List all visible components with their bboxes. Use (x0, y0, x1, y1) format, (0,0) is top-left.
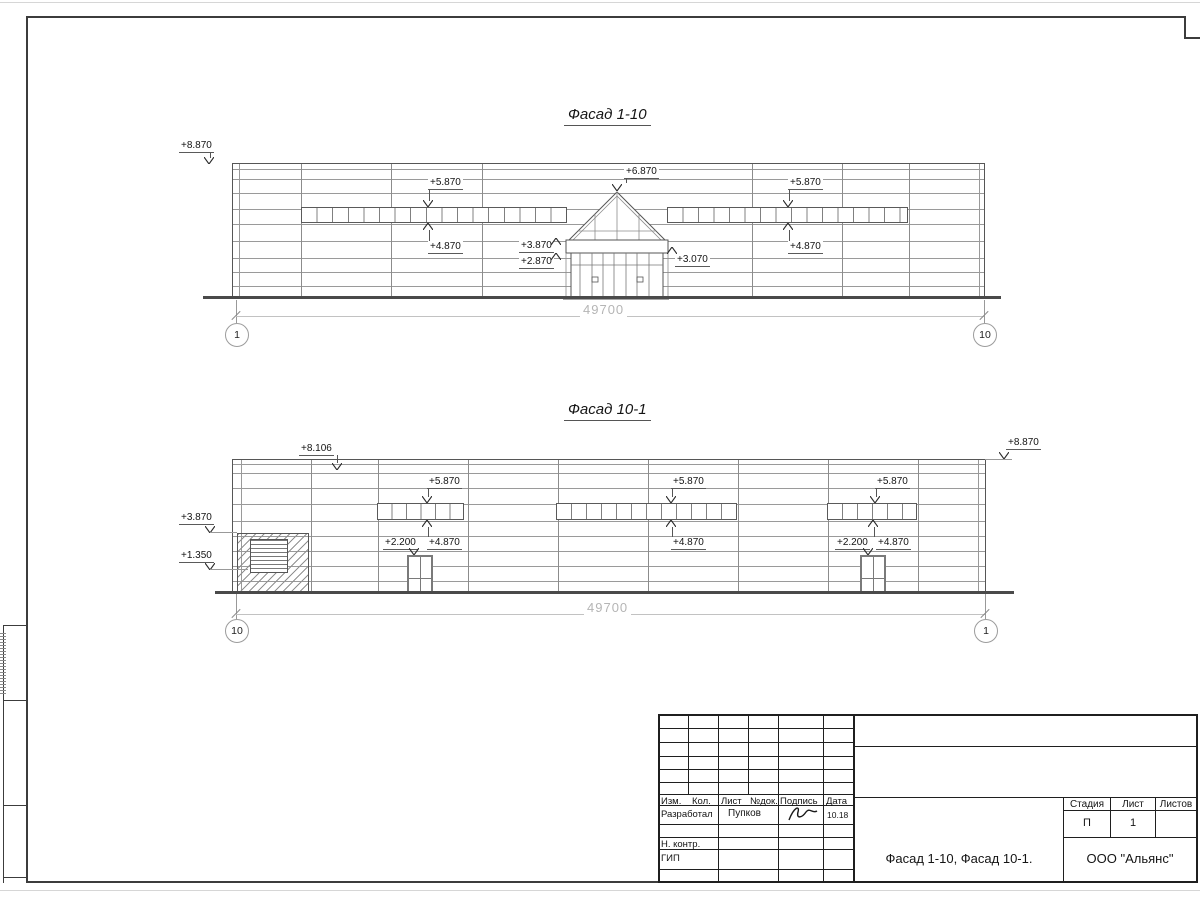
door-rail (862, 578, 884, 579)
elevation-leader (429, 230, 430, 241)
elevation-leader (874, 527, 875, 537)
tb-grid-line (853, 746, 1198, 747)
elevation-leader (428, 527, 429, 537)
door-mullion (420, 557, 421, 591)
roof-extension-line (985, 459, 1012, 460)
tb-border (1196, 714, 1198, 883)
elevation-mark: +4.870 (671, 537, 706, 550)
tb-grid-line (658, 869, 854, 870)
elevation-leader (337, 455, 338, 463)
signature (786, 804, 820, 824)
margin-box-divider (3, 625, 26, 626)
pilaster-line (979, 164, 980, 297)
facade1-window-band-left (301, 207, 567, 223)
margin-box-divider (3, 805, 26, 806)
elevation-arrow-up-icon (551, 238, 561, 245)
elevation-arrow-down-icon (999, 452, 1009, 459)
level-extension-line (210, 569, 248, 570)
tb-border (658, 714, 660, 883)
panel-joint-line (233, 536, 985, 537)
elevation-mark: +5.870 (671, 476, 706, 489)
margin-box-divider (3, 700, 26, 701)
tb-col-ndok: №док. (750, 796, 778, 807)
dimension-text: 49700 (580, 302, 627, 317)
facade1-entrance-portal (560, 186, 672, 300)
elevation-arrow-up-icon (868, 520, 878, 527)
page-top-edge (0, 2, 1200, 3)
tb-col-kol: Кол. (692, 796, 711, 807)
tb-list-label: Лист (1111, 799, 1155, 810)
frame-left-line (26, 16, 28, 883)
tb-grid-line (658, 728, 854, 729)
tb-grid-line (1063, 810, 1198, 811)
elevation-leader (672, 527, 673, 537)
tb-list-value: 1 (1111, 817, 1155, 829)
axis-extension-line (985, 594, 986, 619)
tb-row-razrabotal: Разработал (661, 809, 713, 820)
axis-bubble: 1 (974, 619, 998, 643)
facade1-title: Фасад 1-10 (564, 106, 651, 126)
frame-corner-notch-vertical (1184, 16, 1186, 39)
drawing-sheet: Фасад 1-10 (0, 0, 1200, 900)
tb-grid-line (718, 714, 719, 881)
elevation-arrow-up-icon (667, 247, 677, 254)
elevation-arrow-down-icon (863, 548, 873, 555)
axis-bubble: 10 (225, 619, 249, 643)
elevation-mark: +3.870 (179, 512, 214, 525)
tb-grid-line (853, 797, 1198, 798)
elevation-mark: +3.870 (519, 240, 554, 253)
elevation-mark: +4.870 (427, 537, 462, 550)
margin-box-divider (3, 877, 26, 878)
tb-col-izm: Изм. (661, 796, 681, 807)
margin-stamp-text (0, 632, 6, 694)
elevation-leader (626, 178, 627, 183)
elevation-arrow-down-icon (783, 200, 793, 207)
elevation-arrow-down-icon (332, 463, 342, 470)
pilaster-line (239, 164, 240, 297)
frame-top-line (26, 16, 1184, 18)
elevation-mark: +8.870 (179, 140, 214, 153)
facade2-door-1 (407, 555, 433, 593)
elevation-mark: +4.870 (788, 241, 823, 254)
column-joint-line (842, 164, 843, 297)
facade2-louver-grille (250, 539, 288, 573)
facade2-door-2 (860, 555, 886, 593)
column-joint-line (918, 460, 919, 592)
tb-grid-line (823, 714, 824, 881)
elevation-mark: +5.870 (428, 177, 463, 190)
axis-bubble: 10 (973, 323, 997, 347)
panel-joint-line (233, 488, 985, 489)
elevation-arrow-down-icon (870, 496, 880, 503)
tb-grid-line (658, 794, 854, 795)
column-joint-line (482, 164, 483, 297)
axis-extension-line (236, 594, 237, 619)
elevation-arrow-down-icon (612, 184, 622, 191)
column-joint-line (468, 460, 469, 592)
panel-joint-line (233, 179, 984, 180)
dimension-text: 49700 (584, 600, 631, 615)
door-mullion (873, 557, 874, 591)
elevation-arrow-down-icon (423, 200, 433, 207)
elevation-mark: +3.070 (675, 254, 710, 267)
facade2-ground-line (215, 591, 1014, 594)
elevation-arrow-down-icon (666, 496, 676, 503)
elevation-mark: +4.870 (428, 241, 463, 254)
tb-doc-title: Фасад 1-10, Фасад 10-1. (855, 851, 1063, 866)
panel-joint-line (233, 473, 985, 474)
elevation-arrow-up-icon (422, 520, 432, 527)
elevation-mark: +1.350 (179, 550, 214, 563)
elevation-arrow-up-icon (551, 253, 561, 260)
elevation-mark: +8.870 (1006, 437, 1041, 450)
column-joint-line (558, 460, 559, 592)
tb-col-data: Дата (826, 796, 847, 807)
elevation-arrow-up-icon (783, 223, 793, 230)
elevation-mark: +8.106 (299, 443, 334, 456)
facade2-window-band-1 (377, 503, 464, 520)
tb-grid-line (658, 824, 854, 825)
column-joint-line (738, 460, 739, 592)
tb-stadiya-value: П (1064, 817, 1110, 829)
tb-grid-line (658, 769, 854, 770)
elevation-leader (789, 230, 790, 241)
tb-stadiya-label: Стадия (1064, 799, 1110, 810)
facade1-ground-line (203, 296, 1001, 299)
canopy-fascia (566, 240, 668, 253)
column-joint-line (648, 460, 649, 592)
elevation-arrow-down-icon (204, 157, 214, 164)
axis-extension-line (984, 300, 985, 323)
elevation-mark: +2.870 (519, 256, 554, 269)
elevation-mark: +4.870 (876, 537, 911, 550)
tb-company: ООО "Альянс" (1064, 851, 1196, 866)
tb-border (658, 881, 1198, 883)
tb-row-gip: ГИП (661, 853, 680, 864)
elevation-arrow-down-icon (409, 548, 419, 555)
frame-corner-notch-horizontal (1184, 37, 1200, 39)
elevation-mark: +5.870 (788, 177, 823, 190)
tb-col-list: Лист (721, 796, 742, 807)
panel-joint-line (233, 169, 984, 170)
axis-bubble: 1 (225, 323, 249, 347)
tb-listov-label: Листов (1156, 799, 1196, 810)
elevation-mark: +5.870 (427, 476, 462, 489)
column-joint-line (752, 164, 753, 297)
tb-razrabotal-name: Пупков (728, 808, 761, 819)
door-rail (409, 578, 431, 579)
tb-row-nkontr: Н. контр. (661, 839, 700, 850)
column-joint-line (311, 460, 312, 592)
tb-grid-line (658, 742, 854, 743)
column-joint-line (301, 164, 302, 297)
elevation-arrow-up-icon (423, 223, 433, 230)
elevation-mark: +6.870 (624, 166, 659, 179)
facade2-window-band-2 (556, 503, 737, 520)
column-joint-line (378, 460, 379, 592)
axis-extension-line (236, 300, 237, 323)
tb-grid-line (658, 756, 854, 757)
elevation-arrow-up-icon (666, 520, 676, 527)
title-block: Изм. Кол. Лист №док. Подпись Дата Разраб… (658, 714, 1198, 883)
tb-grid-line (658, 837, 854, 838)
facade2-title: Фасад 10-1 (564, 401, 651, 421)
column-joint-line (828, 460, 829, 592)
page-bottom-edge (0, 890, 1200, 891)
level-extension-line (210, 532, 237, 533)
facade1-window-band-right (667, 207, 908, 223)
tb-grid-line (658, 782, 854, 783)
elevation-mark: +5.870 (875, 476, 910, 489)
tb-border (658, 714, 1198, 716)
pilaster-line (978, 460, 979, 592)
tb-razrabotal-date: 10.18 (827, 810, 848, 820)
panel-joint-line (233, 464, 985, 465)
tb-grid-line (1063, 837, 1198, 838)
facade2-window-band-3 (827, 503, 917, 520)
elevation-arrow-down-icon (422, 496, 432, 503)
column-joint-line (909, 164, 910, 297)
tb-grid-line (778, 714, 779, 881)
column-joint-line (391, 164, 392, 297)
